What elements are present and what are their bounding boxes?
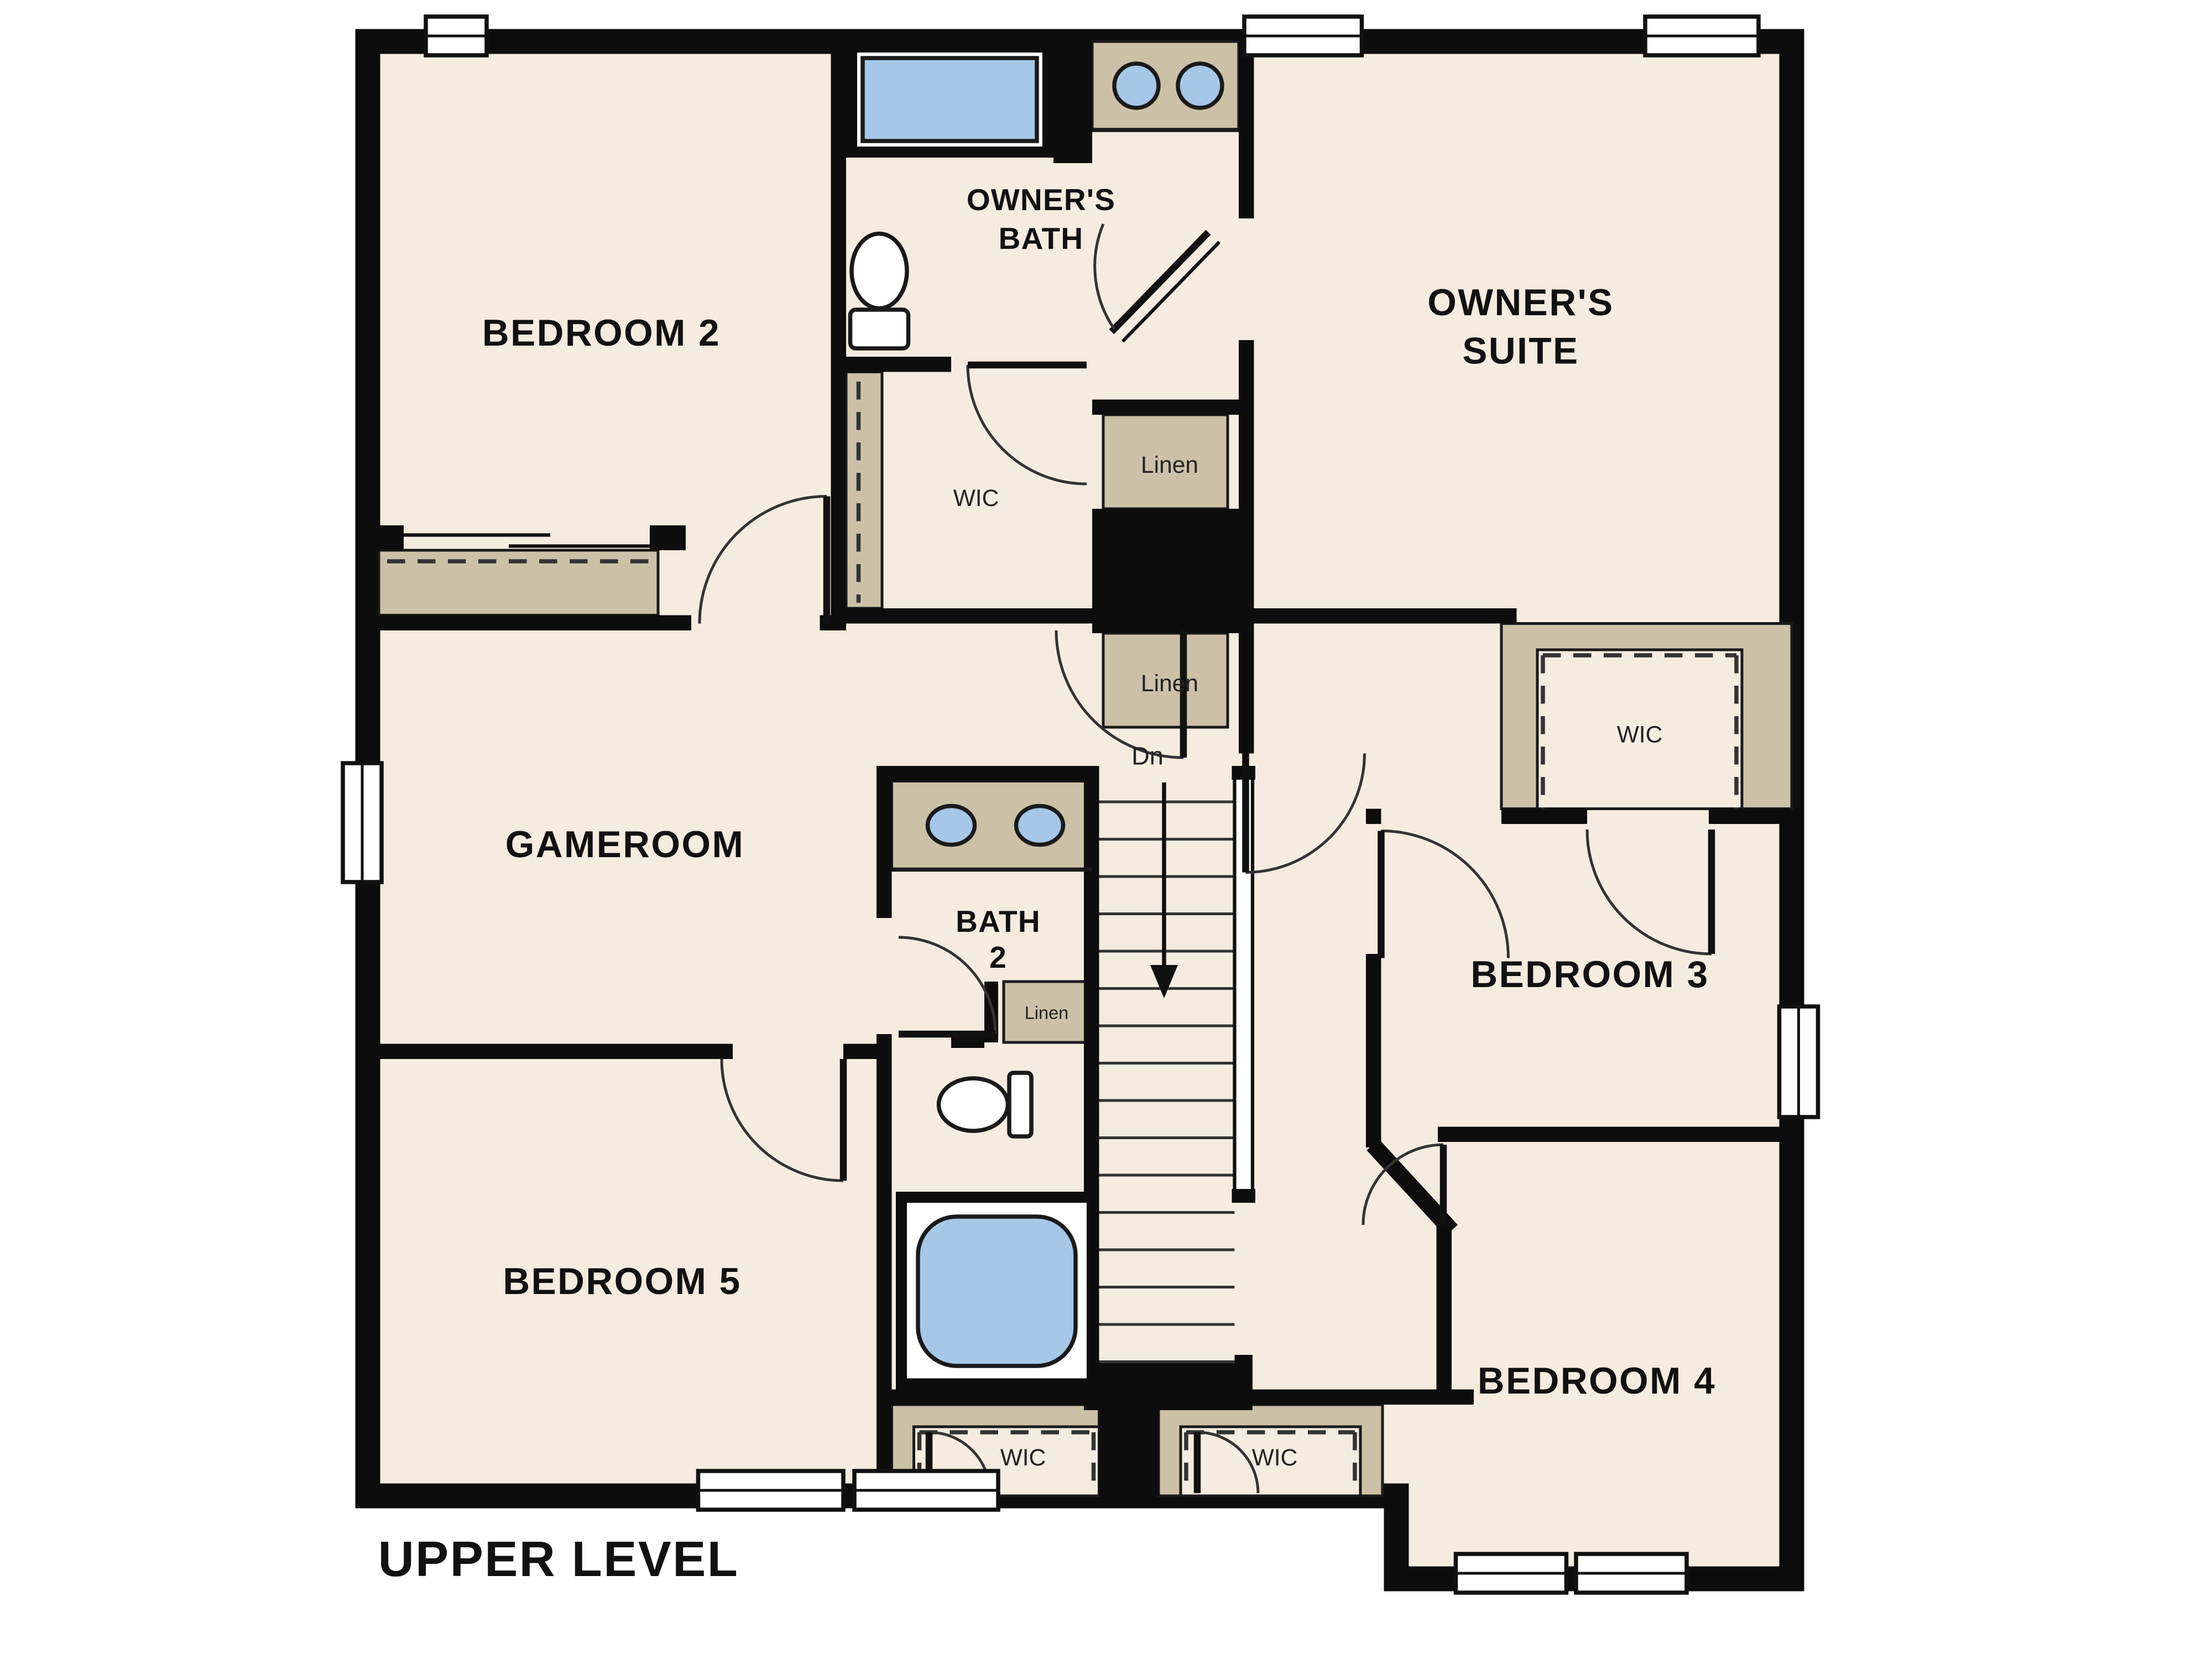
bath2-toilet-tank (1009, 1073, 1031, 1136)
linen-bath2-label: Linen (1025, 1003, 1069, 1023)
staircase (1099, 766, 1256, 1362)
wall-shower-stub (1053, 41, 1092, 163)
wall-bed2-south (368, 615, 691, 631)
wall-bed4-west (1437, 1225, 1452, 1391)
wall-hall-east-n (1239, 41, 1254, 218)
owners-wic-shelf (846, 372, 882, 609)
floor-plan-canvas: BEDROOM 2 OWNER'S BATH OWNER'S SUITE Lin… (0, 0, 2212, 1659)
owners-shower-pan (863, 58, 1037, 141)
owners-bath-label-1: OWNER'S (967, 182, 1115, 217)
wall-bath2-north (877, 766, 1099, 781)
wall-wic5-north (892, 1390, 1099, 1405)
wall-bed3-west-post (1366, 809, 1381, 825)
wall-chase (1092, 509, 1239, 633)
bath2-tub (918, 1217, 1076, 1366)
owners-suite-label-1: OWNER'S (1427, 282, 1614, 324)
stairs-dn-label: Dn (1131, 742, 1164, 770)
wall-bed3-north-w (1501, 809, 1587, 825)
wall-wic4-north (1159, 1390, 1474, 1405)
owners-toilet-bowl (852, 234, 907, 309)
wall-bed3-bed4-divider (1438, 1127, 1792, 1142)
wall-bedroom2-east (831, 41, 847, 624)
bath2-label-2: 2 (989, 940, 1007, 974)
owners-toilet-tank (851, 310, 909, 348)
wall-wic-divider (1099, 1405, 1159, 1496)
wic-bedroom5-label: WIC (1000, 1445, 1046, 1471)
wall-bedroom5-east (877, 1034, 892, 1496)
wall-bed3-west (1366, 954, 1381, 1147)
bedroom2-label: BEDROOM 2 (482, 312, 721, 354)
wic-owners-label: WIC (953, 486, 999, 512)
bedroom5-label: BEDROOM 5 (503, 1261, 741, 1302)
floor-plan: BEDROOM 2 OWNER'S BATH OWNER'S SUITE Lin… (0, 0, 2212, 1659)
linen-lower-label: Linen (1141, 671, 1198, 697)
owners-sink-right (1178, 64, 1222, 108)
owners-bath-label-2: BATH (999, 221, 1084, 255)
stair-newel-bottom (1232, 1189, 1256, 1203)
upper-level-title: UPPER LEVEL (378, 1532, 739, 1587)
wic-bedroom3-label: WIC (1617, 722, 1663, 748)
bedroom3-label: BEDROOM 3 (1470, 954, 1709, 995)
bath2-sink-right (1016, 806, 1063, 845)
wall-linen-upper-n (1092, 400, 1254, 415)
bedroom4-label: BEDROOM 4 (1478, 1360, 1716, 1402)
wic-bedroom4-label: WIC (1252, 1445, 1298, 1471)
bath2-sink-left (928, 806, 975, 845)
wall-bath-toilet-south (846, 357, 951, 372)
owners-suite-label-2: SUITE (1462, 331, 1579, 372)
linen-upper-label: Linen (1141, 452, 1198, 478)
wall-owners-suite-south (1254, 608, 1517, 624)
wall-owners-wic-south (846, 608, 1092, 624)
wall-bed3-north-e (1709, 809, 1792, 825)
gameroom-label: GAMEROOM (505, 824, 744, 865)
wall-bed2-closet-post-w (368, 525, 404, 550)
stair-shaft (1099, 774, 1235, 1362)
wall-gameroom-south (368, 1044, 733, 1060)
bath2-label-1: BATH (956, 904, 1041, 938)
owners-sink-left (1114, 64, 1159, 108)
bath2-toilet-bowl (939, 1078, 1008, 1131)
wall-bath2-west-n (877, 766, 892, 918)
